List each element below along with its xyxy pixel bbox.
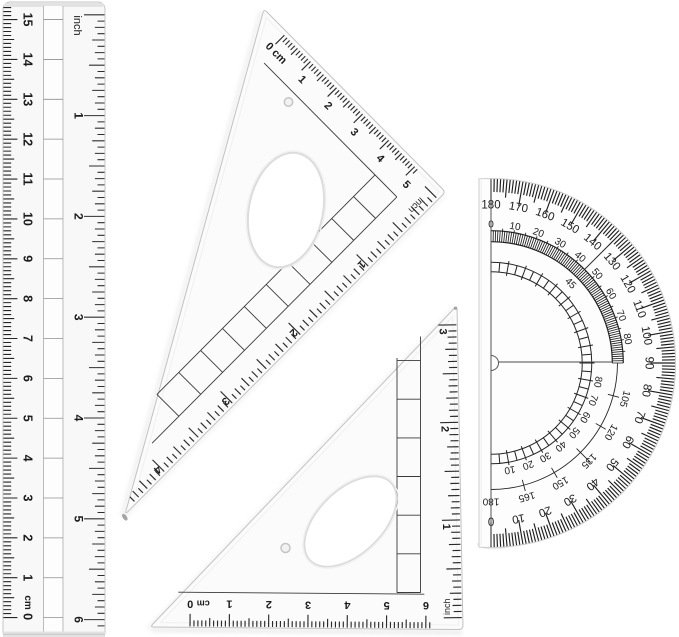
- svg-text:10: 10: [21, 212, 35, 226]
- svg-text:15: 15: [21, 13, 35, 27]
- svg-text:90: 90: [643, 357, 655, 370]
- svg-text:10: 10: [511, 511, 526, 525]
- svg-text:2: 2: [72, 213, 86, 220]
- svg-text:1: 1: [21, 574, 35, 581]
- svg-text:0: 0: [187, 597, 193, 609]
- svg-text:11: 11: [21, 172, 35, 185]
- svg-text:4: 4: [72, 415, 86, 422]
- svg-text:6: 6: [423, 599, 429, 611]
- svg-text:5: 5: [21, 415, 35, 422]
- svg-text:9: 9: [21, 255, 35, 262]
- svg-text:inch: inch: [71, 15, 83, 35]
- svg-text:cm: cm: [22, 595, 33, 610]
- svg-text:6: 6: [72, 616, 86, 623]
- svg-text:4: 4: [343, 599, 350, 611]
- svg-text:1: 1: [226, 598, 232, 610]
- svg-text:4: 4: [21, 455, 35, 462]
- svg-text:12: 12: [21, 132, 35, 146]
- svg-text:cm: cm: [197, 598, 210, 608]
- svg-text:3: 3: [21, 495, 35, 502]
- svg-text:1: 1: [72, 112, 86, 119]
- svg-text:8: 8: [21, 295, 35, 302]
- svg-text:2: 2: [21, 534, 35, 541]
- svg-text:inch: inch: [442, 599, 452, 616]
- svg-text:2: 2: [438, 426, 450, 432]
- svg-text:80: 80: [639, 383, 653, 398]
- svg-text:1: 1: [440, 524, 452, 530]
- svg-text:6: 6: [21, 375, 35, 382]
- svg-text:5: 5: [384, 599, 390, 611]
- svg-text:0: 0: [21, 613, 35, 620]
- svg-text:2: 2: [266, 598, 272, 610]
- svg-text:14: 14: [21, 52, 35, 66]
- svg-text:13: 13: [21, 92, 35, 106]
- svg-text:3: 3: [436, 328, 448, 334]
- svg-text:3: 3: [305, 598, 311, 610]
- svg-text:7: 7: [21, 335, 35, 342]
- svg-text:5: 5: [72, 515, 86, 522]
- svg-text:3: 3: [72, 314, 86, 321]
